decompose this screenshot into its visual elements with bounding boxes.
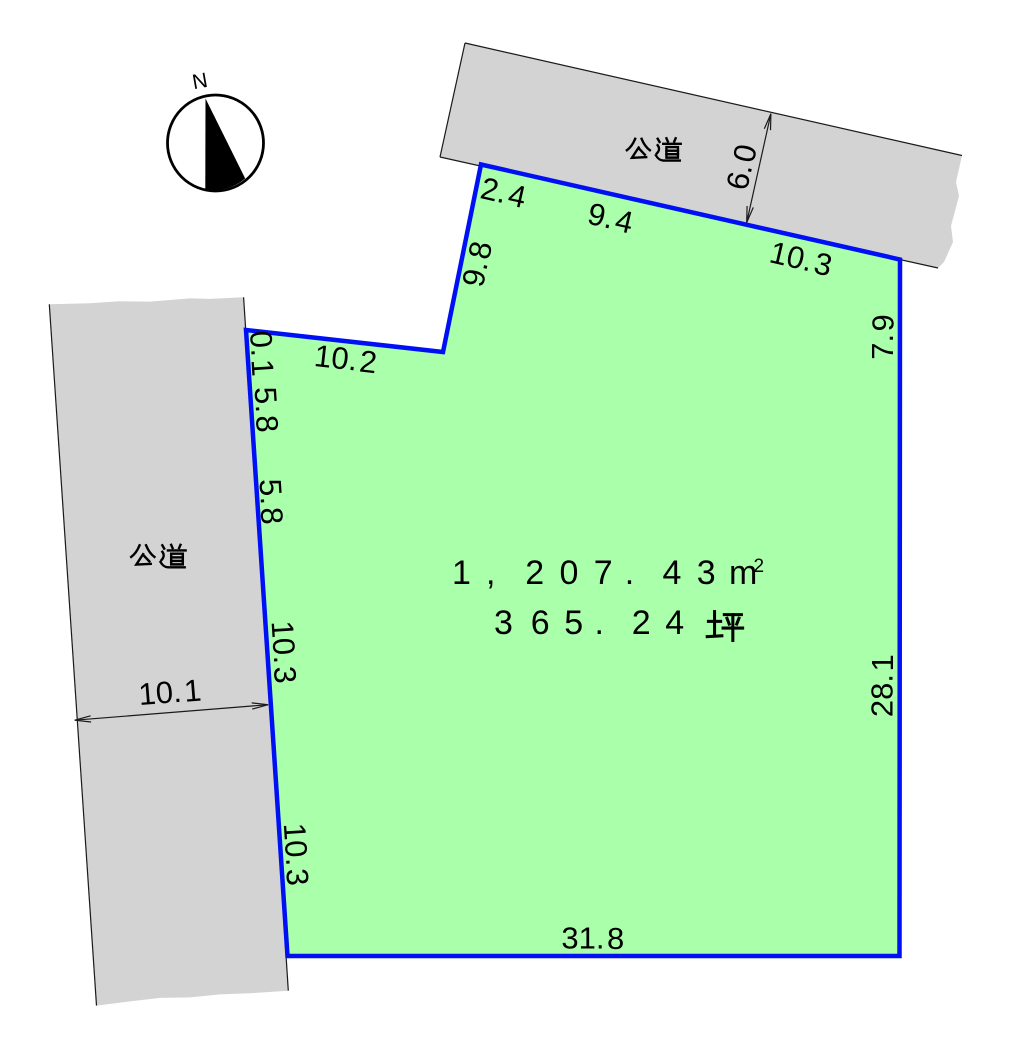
svg-text:10.1: 10.1 — [137, 672, 202, 712]
svg-text:7.9: 7.9 — [865, 314, 900, 360]
svg-text:10.3: 10.3 — [277, 822, 316, 887]
svg-text:31.8: 31.8 — [561, 921, 624, 956]
svg-text:5.8: 5.8 — [248, 386, 286, 434]
svg-text:10.3: 10.3 — [265, 620, 304, 685]
svg-text:28.1: 28.1 — [865, 654, 900, 717]
svg-text:5.8: 5.8 — [252, 478, 290, 526]
svg-text:10.2: 10.2 — [313, 338, 379, 380]
svg-text:N: N — [191, 69, 210, 94]
svg-text:0.1: 0.1 — [243, 330, 281, 378]
svg-text:2: 2 — [754, 556, 765, 577]
